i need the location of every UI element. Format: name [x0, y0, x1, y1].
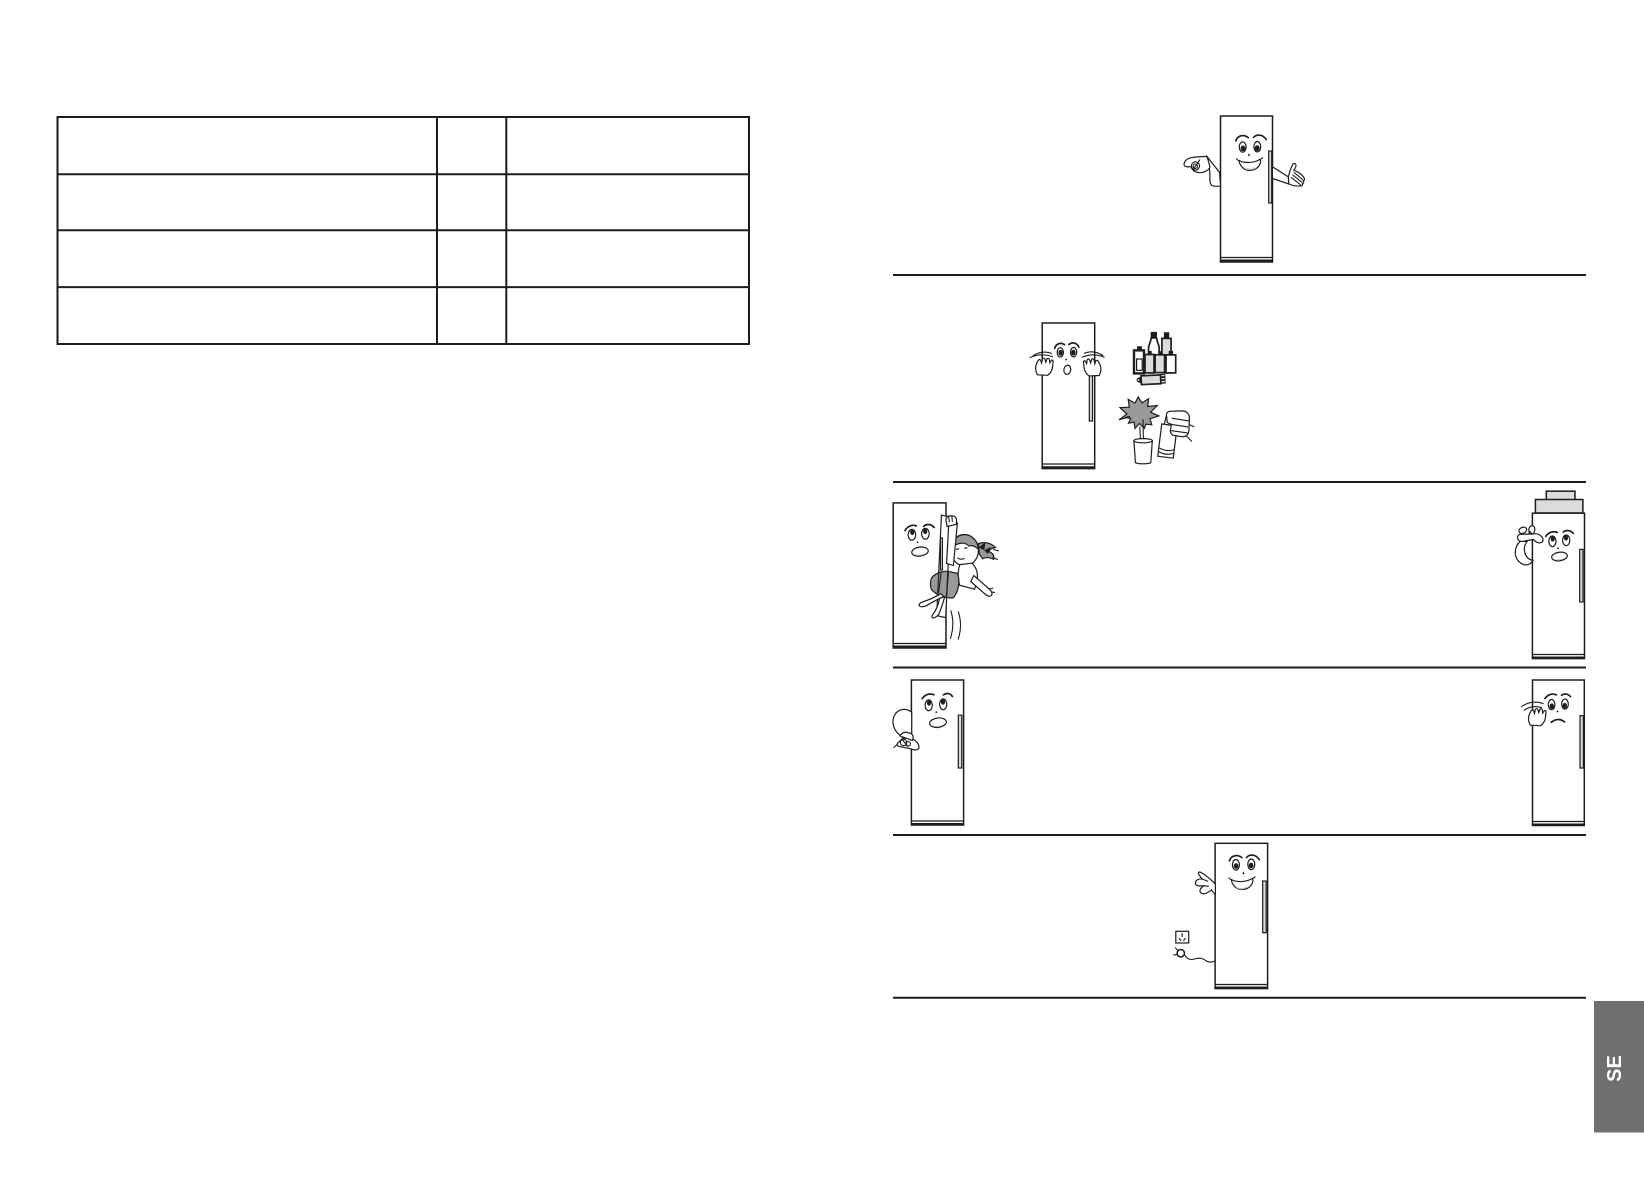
- svg-text:SE: SE: [1604, 1055, 1626, 1082]
